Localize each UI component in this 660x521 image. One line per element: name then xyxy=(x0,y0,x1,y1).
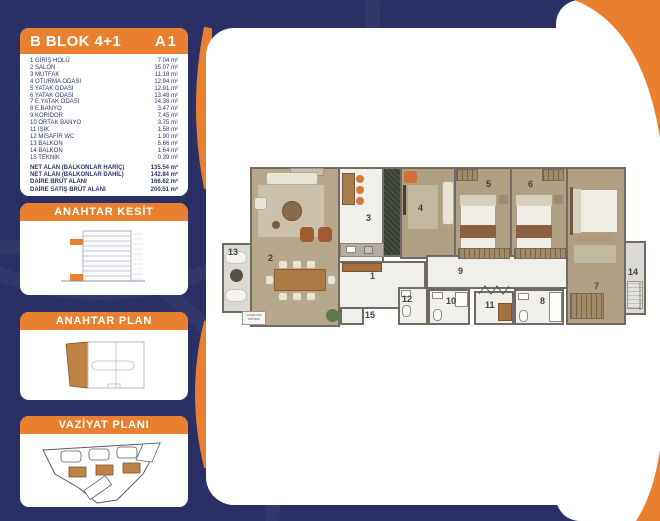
room-area-list: 1 GİRİŞ HOLÜ7.04 m²2 SALON35.07 m²3 MUTF… xyxy=(20,54,188,162)
room-number-6: 6 xyxy=(528,179,533,189)
bathtub xyxy=(549,292,562,322)
room-row: 14 BALKON1.64 m² xyxy=(30,148,178,155)
room-row: 10 ORTAK BANYO3.75 m² xyxy=(30,120,178,127)
side-table xyxy=(272,221,280,229)
highlighted-block xyxy=(69,467,86,477)
shower xyxy=(455,292,468,307)
dining-chair xyxy=(278,260,288,269)
wardrobe xyxy=(514,248,566,259)
ac-note: KLİMA DIŞ ÜNİTESİ xyxy=(242,311,266,325)
room-row: 13 BALKON5.66 m² xyxy=(30,141,178,148)
room-number-3: 3 xyxy=(366,213,371,223)
toilet xyxy=(519,310,528,322)
total-row: NET ALAN (BALKONLAR HARİÇ)135.54 m² xyxy=(30,165,178,172)
shaft xyxy=(382,167,402,257)
bed-bench xyxy=(578,235,612,241)
lounger xyxy=(225,289,247,302)
wardrobe xyxy=(542,169,564,181)
dining-chair xyxy=(327,275,336,285)
key-section-panel: ANAHTAR KESİT xyxy=(20,203,188,295)
lounge-chair xyxy=(300,227,314,242)
room-number-10: 10 xyxy=(446,296,456,306)
room-row: 7 E.YATAK ODASI24.38 m² xyxy=(30,99,178,106)
ac-note-vertical: KLİMA DIŞ ÜNİTESİ xyxy=(638,283,642,310)
site-plan-body xyxy=(20,434,188,507)
coffee-table xyxy=(282,201,302,221)
room-row: 4 OTURMA ODASI12.94 m² xyxy=(30,79,178,86)
stool xyxy=(356,175,364,183)
lightwell-zigzag-icon xyxy=(478,285,510,295)
room-corridor-9 xyxy=(426,255,568,289)
room-number-5: 5 xyxy=(486,179,491,189)
sink xyxy=(346,246,356,253)
key-plan-title: ANAHTAR PLAN xyxy=(20,312,188,330)
room-number-14: 14 xyxy=(628,267,638,277)
sofa xyxy=(442,181,454,225)
nightstand xyxy=(554,195,563,204)
room-number-13: 13 xyxy=(228,247,238,257)
room-row: 3 MUTFAK11.18 m² xyxy=(30,72,178,79)
ac-note-line2: ÜNİTESİ xyxy=(243,318,265,322)
dining-chair xyxy=(306,260,316,269)
room-number-15: 15 xyxy=(365,310,375,320)
room-number-1: 1 xyxy=(370,271,375,281)
room-number-12: 12 xyxy=(402,294,412,304)
unit-code: A1 xyxy=(155,33,178,50)
room-row: 6 YATAK ODASI13.48 m² xyxy=(30,93,178,100)
sink xyxy=(518,293,529,300)
pillows xyxy=(516,195,552,206)
hall-cabinet xyxy=(342,263,382,272)
room-row: 15 TEKNİK0.39 m² xyxy=(30,155,178,162)
room-row: 2 SALON35.07 m² xyxy=(30,65,178,72)
dining-chair xyxy=(292,292,302,301)
pillows xyxy=(572,189,581,233)
site-plan-diagram xyxy=(33,438,175,504)
unit-card-header: B BLOK 4+1 A1 xyxy=(20,28,188,54)
room-row: 9 KORİDOR7.45 m² xyxy=(30,113,178,120)
room-number-11: 11 xyxy=(485,300,495,310)
toilet xyxy=(402,305,411,317)
key-plan-panel: ANAHTAR PLAN xyxy=(20,312,188,400)
room-number-4: 4 xyxy=(418,203,423,213)
building-section-diagram xyxy=(45,226,163,290)
nightstand xyxy=(499,195,508,204)
block-title: B BLOK 4+1 xyxy=(30,33,121,50)
room-number-2: 2 xyxy=(268,253,273,263)
highlighted-unit xyxy=(66,342,88,388)
brochure-page: B BLOK 4+1 A1 1 GİRİŞ HOLÜ7.04 m²2 SALON… xyxy=(0,0,660,521)
bed-throw xyxy=(460,225,496,238)
dining-chair xyxy=(278,292,288,301)
stool xyxy=(356,186,364,194)
stool xyxy=(356,197,364,205)
room-number-7: 7 xyxy=(594,281,599,291)
room-row: 11 IŞIK1.58 m² xyxy=(30,127,178,134)
accent-chair xyxy=(404,171,417,183)
key-section-title: ANAHTAR KESİT xyxy=(20,203,188,221)
room-row: 1 GİRİŞ HOLÜ7.04 m² xyxy=(30,58,178,65)
headboard xyxy=(570,187,573,235)
dining-chair xyxy=(306,292,316,301)
corner-swoosh-top-right xyxy=(556,0,660,140)
lounge-chair xyxy=(318,227,332,242)
area-totals: NET ALAN (BALKONLAR HARİÇ)135.54 m²NET A… xyxy=(20,162,188,195)
dining-chair xyxy=(265,275,274,285)
tv xyxy=(403,185,406,215)
highlighted-block xyxy=(123,463,140,473)
highlighted-block xyxy=(96,465,113,475)
highlighted-floor-ground xyxy=(70,274,83,281)
site-plan-panel: VAZİYAT PLANI xyxy=(20,416,188,507)
sofa xyxy=(266,172,318,185)
key-plan-diagram xyxy=(48,336,160,394)
dining-chair xyxy=(292,260,302,269)
stove xyxy=(364,246,373,254)
room-number-8: 8 xyxy=(540,296,545,306)
bed-throw xyxy=(516,225,552,238)
wardrobe xyxy=(458,248,510,259)
corner-swoosh-bottom-right xyxy=(556,381,660,521)
highlighted-floor-upper xyxy=(70,239,83,245)
total-row: DAİRE SATIŞ BRÜT ALANI200.51 m² xyxy=(30,187,178,194)
plant xyxy=(326,309,339,322)
apartment-floor-plan: KLİMA DIŞ ÜNİTESİ KLİMA DIŞ ÜNİTESİ 1234… xyxy=(222,163,655,331)
wardrobe xyxy=(570,293,604,319)
room-row: 5 YATAK ODASI12.91 m² xyxy=(30,86,178,93)
rug xyxy=(574,245,616,263)
unit-info-card: B BLOK 4+1 A1 1 GİRİŞ HOLÜ7.04 m²2 SALON… xyxy=(20,28,188,196)
sink xyxy=(432,292,443,299)
pillows xyxy=(460,195,496,206)
kitchen-island xyxy=(342,173,355,205)
room-number-9: 9 xyxy=(458,266,463,276)
armchair xyxy=(254,197,267,210)
key-section-body xyxy=(20,221,188,295)
key-plan-body xyxy=(20,330,188,400)
wardrobe xyxy=(456,169,478,181)
site-plan-title: VAZİYAT PLANI xyxy=(20,416,188,434)
cabinet xyxy=(498,303,512,321)
dining-table xyxy=(274,269,326,291)
total-row: DAİRE BRÜT ALANI166.62 m² xyxy=(30,179,178,186)
balcony-table xyxy=(230,269,243,282)
room-row: 12 MİSAFİR WC1.90 m² xyxy=(30,134,178,141)
room-technical-15 xyxy=(340,307,364,325)
toilet xyxy=(433,309,442,321)
